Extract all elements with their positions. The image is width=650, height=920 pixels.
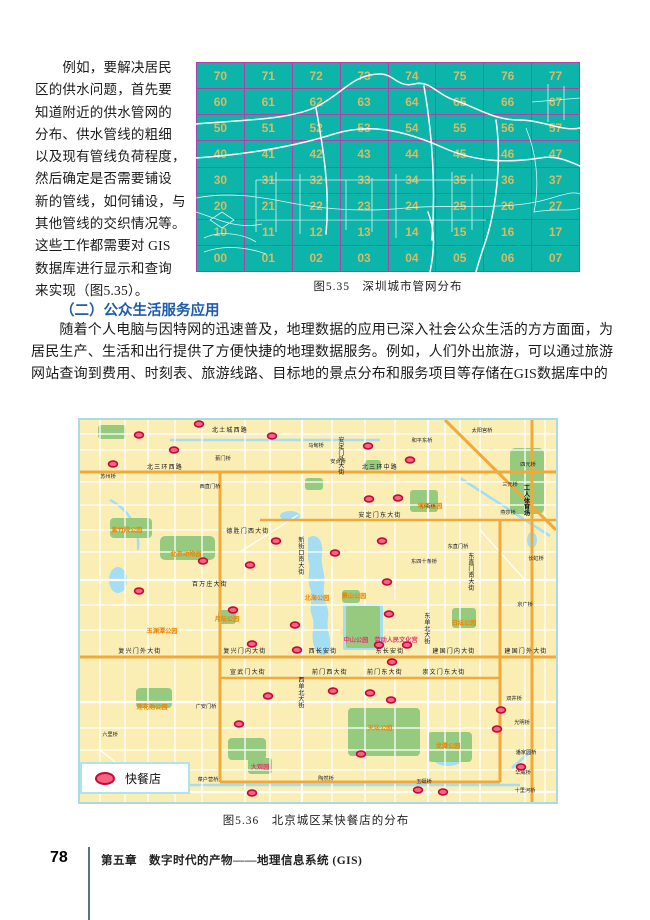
grid-cell-07: 07	[531, 245, 579, 271]
grid-cell-55: 55	[435, 114, 483, 140]
fast-food-marker	[364, 443, 373, 449]
fast-food-marker	[135, 432, 144, 438]
street-label: 建国门内大街	[432, 647, 475, 655]
street-label: 安定门东大街	[358, 511, 401, 519]
grid-cell-36: 36	[483, 167, 531, 193]
fast-food-marker	[199, 558, 208, 564]
grid-cell-30: 30	[196, 167, 244, 193]
grid-cell-14: 14	[388, 219, 436, 245]
park-label: 地坛公园	[418, 502, 443, 510]
left-column-paragraph: 例如，要解决居民 区的供水问题，首先要 知道附近的供水管网的 分布、供水管线的粗…	[35, 57, 191, 302]
bridge-label: 燕莎桥	[500, 508, 516, 516]
bridge-label: 长虹桥	[528, 554, 544, 562]
grid-cell-34: 34	[388, 167, 436, 193]
fast-food-marker	[264, 693, 273, 699]
park-label: 天坛公园	[368, 724, 393, 732]
fast-food-marker	[229, 607, 238, 613]
grid-cell-74: 74	[388, 62, 436, 88]
grid-cell-17: 17	[531, 219, 579, 245]
fast-food-marker	[268, 433, 277, 439]
bridge-label: 西直门桥	[200, 482, 222, 490]
fast-food-marker	[383, 579, 392, 585]
fast-food-marker	[385, 611, 394, 617]
bridge-label: 双井桥	[506, 694, 522, 702]
textbook-page: 例如，要解决居民 区的供水问题，首先要 知道附近的供水管网的 分布、供水管线的粗…	[0, 0, 650, 920]
fast-food-marker	[517, 764, 526, 770]
bridge-label: 马甸桥	[308, 441, 324, 449]
grid-cell-46: 46	[483, 140, 531, 166]
section-heading: （二）公众生活服务应用	[60, 299, 220, 320]
grid-cell-67: 67	[531, 88, 579, 114]
bridge-label: 京广桥	[517, 600, 533, 608]
park-label: 月坛公园	[214, 615, 240, 623]
fast-food-marker	[248, 641, 257, 647]
fast-food-marker	[331, 550, 340, 556]
grid-cell-27: 27	[531, 193, 579, 219]
grid-cell-45: 45	[435, 140, 483, 166]
fast-food-legend-icon	[95, 772, 115, 785]
body-paragraph: 随着个人电脑与因特网的迅速普及，地理数据的应用已深入社会公众生活的方方面面，为 …	[31, 320, 623, 387]
grid-cell-23: 23	[340, 193, 388, 219]
grid-cell-52: 52	[292, 114, 340, 140]
grid-cell-40: 40	[196, 140, 244, 166]
grid-cell-32: 32	[292, 167, 340, 193]
grid-cell-22: 22	[292, 193, 340, 219]
street-label: 宣武门大街	[230, 668, 266, 676]
park-label: 北京动物园	[171, 550, 202, 558]
grid-cell-12: 12	[292, 219, 340, 245]
grid-cell-66: 66	[483, 88, 531, 114]
grid-cell-63: 63	[340, 88, 388, 114]
figure-caption-5-36: 图5.36 北京城区某快餐店的分布	[78, 812, 554, 828]
fast-food-marker	[406, 457, 415, 463]
grid-cell-35: 35	[435, 167, 483, 193]
fast-food-marker	[387, 697, 396, 703]
bridge-label: 六里桥	[102, 730, 118, 738]
street-label: 前门东大街	[367, 668, 403, 676]
street-label: 百万庄大街	[192, 580, 228, 588]
grid-cell-10: 10	[196, 219, 244, 245]
beijing-fastfood-map: 北土城西路北三环西路北三环中路安定门东大街德胜门西大街百万庄大街复兴门外大街复兴…	[78, 418, 558, 804]
bridge-label: 光明桥	[514, 718, 530, 726]
grid-cell-50: 50	[196, 114, 244, 140]
fast-food-marker	[388, 659, 397, 665]
grid-cell-75: 75	[435, 62, 483, 88]
grid-cell-04: 04	[388, 245, 436, 271]
grid-cell-62: 62	[292, 88, 340, 114]
grid-cell-77: 77	[531, 62, 579, 88]
street-label: 新街口南大街	[298, 536, 305, 576]
bridge-label: 苏州桥	[100, 472, 116, 480]
bridge-label: 三元桥	[502, 480, 518, 488]
bridge-label: 十里河桥	[515, 786, 537, 794]
grid-cell-41: 41	[244, 140, 292, 166]
grid-cell-02: 02	[292, 245, 340, 271]
map-grid: 7071727374757677606162636465666750515253…	[196, 62, 580, 272]
bridge-label: 菜户营桥	[198, 775, 220, 783]
fast-food-marker	[291, 622, 300, 628]
grid-cell-57: 57	[531, 114, 579, 140]
grid-cell-43: 43	[340, 140, 388, 166]
street-label: 东直门南大街	[468, 552, 475, 592]
grid-cell-72: 72	[292, 62, 340, 88]
park-label: 景山公园	[341, 592, 367, 600]
street-label: 安定门外大街	[338, 436, 345, 476]
fast-food-marker	[272, 538, 281, 544]
grid-cell-61: 61	[244, 88, 292, 114]
grid-cell-73: 73	[340, 62, 388, 88]
grid-cell-20: 20	[196, 193, 244, 219]
street-label: 北土城西路	[212, 426, 248, 434]
fast-food-marker	[246, 562, 255, 568]
grid-cell-15: 15	[435, 219, 483, 245]
street-label: 复兴门外大街	[118, 647, 161, 655]
bridge-label: 东四十条桥	[411, 557, 438, 565]
fast-food-marker	[378, 538, 387, 544]
fast-food-marker	[493, 726, 502, 732]
bridge-label: 和平东桥	[412, 436, 434, 444]
grid-cell-03: 03	[340, 245, 388, 271]
fast-food-marker	[248, 790, 257, 796]
street-label: 西单北大街	[298, 677, 305, 710]
grid-cell-64: 64	[388, 88, 436, 114]
street-label: 前门西大街	[312, 668, 348, 676]
park-label: 工人体育场	[524, 485, 531, 518]
grid-cell-13: 13	[340, 219, 388, 245]
fast-food-marker	[293, 647, 302, 653]
fast-food-marker	[235, 721, 244, 727]
fast-food-marker	[414, 787, 423, 793]
park-label: 玉渊潭公园	[147, 627, 178, 635]
grid-cell-56: 56	[483, 114, 531, 140]
grid-cell-54: 54	[388, 114, 436, 140]
street-label: 北三环中路	[362, 463, 398, 471]
street-label: 崇文门东大街	[422, 668, 465, 676]
grid-cell-71: 71	[244, 62, 292, 88]
bridge-label: 潘家园桥	[516, 748, 538, 756]
bridge-label: 四元桥	[520, 460, 536, 468]
park-label: 莲花池公园	[137, 703, 168, 711]
street-label: 复兴门内大街	[223, 647, 266, 655]
grid-cell-01: 01	[244, 245, 292, 271]
grid-cell-60: 60	[196, 88, 244, 114]
footer-chapter-title: 第五章 数字时代的产物——地理信息系统 (GIS)	[101, 852, 362, 868]
grid-cell-11: 11	[244, 219, 292, 245]
grid-cell-51: 51	[244, 114, 292, 140]
legend-label: 快餐店	[125, 770, 161, 787]
grid-cell-53: 53	[340, 114, 388, 140]
fast-food-marker	[329, 688, 338, 694]
grid-cell-31: 31	[244, 167, 292, 193]
grid-cell-24: 24	[388, 193, 436, 219]
bridge-label: 太阳宫桥	[472, 426, 494, 434]
fast-food-marker	[403, 642, 412, 648]
park-label: 日坛公园	[452, 619, 477, 627]
park-label: 龙潭公园	[435, 742, 461, 750]
street-label: 西长安街	[309, 647, 338, 655]
grid-cell-42: 42	[292, 140, 340, 166]
fast-food-marker	[365, 496, 374, 502]
street-label: 建国门外大街	[504, 647, 547, 655]
fast-food-marker	[195, 421, 204, 427]
bridge-label: 蓟门桥	[215, 454, 231, 462]
grid-cell-37: 37	[531, 167, 579, 193]
map-canvas: 北土城西路北三环西路北三环中路安定门东大街德胜门西大街百万庄大街复兴门外大街复兴…	[80, 420, 556, 802]
map-legend: 快餐店	[80, 762, 190, 794]
shenzhen-pipe-network-map: 7071727374757677606162636465666750515253…	[196, 62, 580, 272]
bridge-label: 陶然桥	[318, 774, 334, 782]
grid-cell-33: 33	[340, 167, 388, 193]
footer-divider	[88, 847, 90, 920]
grid-cell-47: 47	[531, 140, 579, 166]
grid-cell-21: 21	[244, 193, 292, 219]
fast-food-marker	[357, 751, 366, 757]
fast-food-marker	[375, 642, 384, 648]
street-label: 东单北大街	[424, 612, 431, 646]
grid-cell-25: 25	[435, 193, 483, 219]
fast-food-marker	[109, 461, 118, 467]
grid-cell-76: 76	[483, 62, 531, 88]
grid-cell-26: 26	[483, 193, 531, 219]
bridge-label: 东直门桥	[448, 542, 470, 550]
fast-food-marker	[170, 447, 179, 453]
grid-cell-65: 65	[435, 88, 483, 114]
figure-caption-5-35: 图5.35 深圳城市管网分布	[196, 278, 580, 294]
park-label: 北海公园	[305, 594, 330, 602]
bridge-label: 玉蜓桥	[416, 777, 432, 785]
park-label: 大观园	[251, 763, 270, 771]
street-label: 北三环西路	[147, 463, 183, 471]
grid-cell-70: 70	[196, 62, 244, 88]
fast-food-marker	[135, 588, 144, 594]
grid-cell-05: 05	[435, 245, 483, 271]
fast-food-marker	[394, 495, 403, 501]
bridge-label: 广安门桥	[196, 702, 218, 710]
grid-cell-06: 06	[483, 245, 531, 271]
fast-food-marker	[497, 707, 506, 713]
page-number: 78	[50, 849, 68, 867]
park-label: 中山公园	[344, 636, 369, 644]
park-label: 紫竹院公园	[112, 526, 143, 534]
street-label: 德胜门西大街	[226, 527, 269, 535]
grid-cell-44: 44	[388, 140, 436, 166]
fast-food-marker	[366, 690, 375, 696]
bridge-label: 安贞桥	[330, 457, 346, 465]
grid-cell-16: 16	[483, 219, 531, 245]
grid-cell-00: 00	[196, 245, 244, 271]
fast-food-marker	[439, 789, 448, 795]
